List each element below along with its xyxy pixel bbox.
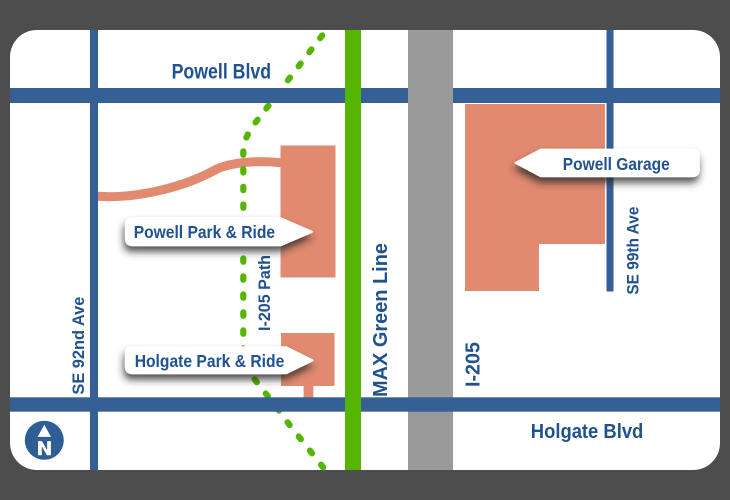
svg-text:I-205 Path: I-205 Path [255,255,274,331]
svg-text:Powell Garage: Powell Garage [563,154,670,174]
svg-text:MAX Green Line: MAX Green Line [369,243,392,397]
svg-text:Holgate Park & Ride: Holgate Park & Ride [135,351,285,371]
svg-text:Holgate Blvd: Holgate Blvd [531,420,644,443]
svg-text:Powell Blvd: Powell Blvd [172,61,272,84]
svg-text:SE 99th Ave: SE 99th Ave [625,207,643,295]
svg-text:Powell Park & Ride: Powell Park & Ride [134,222,276,242]
svg-text:SE 92nd Ave: SE 92nd Ave [70,297,88,395]
svg-text:I-205: I-205 [462,342,485,387]
